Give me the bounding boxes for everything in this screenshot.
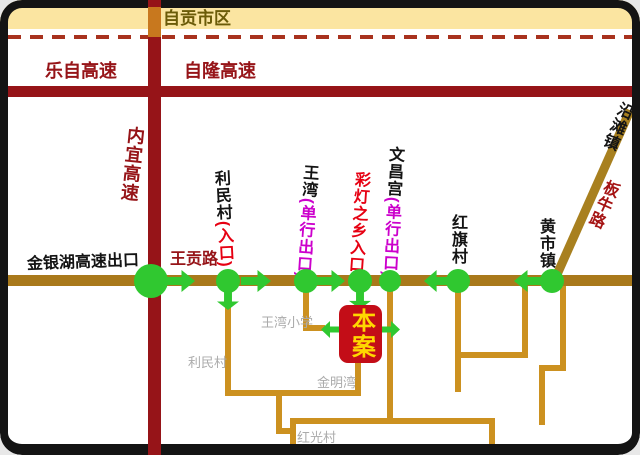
limin-village-label: 利民村	[188, 356, 227, 370]
junction-node-caideng	[348, 269, 372, 293]
wangwan-name: 王湾	[299, 164, 318, 199]
huangshi-town-label: 黄市镇	[537, 218, 553, 269]
neiyi-expressway-road	[148, 0, 161, 455]
route-map: 自贡市区 乐自高速 自隆高速 内宜高速 沿滩镇 板牛路 金银湖高速出口 王贡路 …	[0, 0, 640, 455]
limin-tag: (入口)	[214, 221, 233, 268]
project-site-box: 本案	[339, 305, 382, 363]
city-area-label: 自贡市区	[163, 10, 231, 28]
lezi-expressway-label: 乐自高速	[45, 62, 117, 81]
limin-name: 利民村	[211, 170, 231, 222]
junction-node-limin	[216, 269, 240, 293]
hongqi-village-label: 红旗村	[449, 214, 465, 265]
wanggong-road-label: 王贡路	[170, 252, 218, 269]
project-site-label: 本案	[349, 308, 373, 360]
wenchang-name: 文昌宫	[384, 146, 404, 198]
junction-node-jinyinhu	[134, 264, 168, 298]
wangwan-school-label: 王湾小学	[261, 316, 313, 330]
zilong-expressway-label: 自隆高速	[184, 62, 256, 81]
jinmingwan-label: 金明湾	[317, 376, 356, 390]
junction-node-wenchang	[379, 270, 401, 292]
junction-node-wangwan	[294, 269, 318, 293]
neiyi-expressway-city-segment	[148, 7, 161, 37]
hongguang-village-label: 红光村	[297, 431, 336, 445]
